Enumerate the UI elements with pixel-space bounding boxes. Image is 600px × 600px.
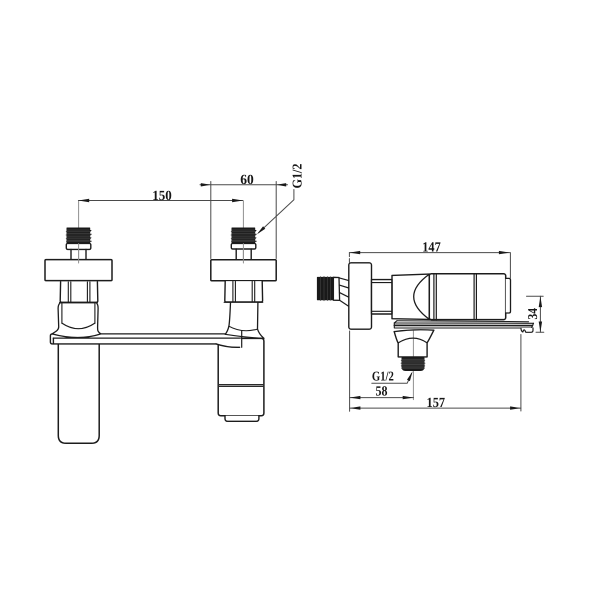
svg-text:G1/2: G1/2 <box>372 368 394 383</box>
svg-text:34: 34 <box>525 308 540 320</box>
svg-text:58: 58 <box>376 384 388 399</box>
svg-text:157: 157 <box>427 396 446 411</box>
svg-text:60: 60 <box>240 173 254 188</box>
svg-text:150: 150 <box>152 189 172 204</box>
svg-text:147: 147 <box>422 241 441 256</box>
svg-text:G1/2: G1/2 <box>290 163 305 188</box>
